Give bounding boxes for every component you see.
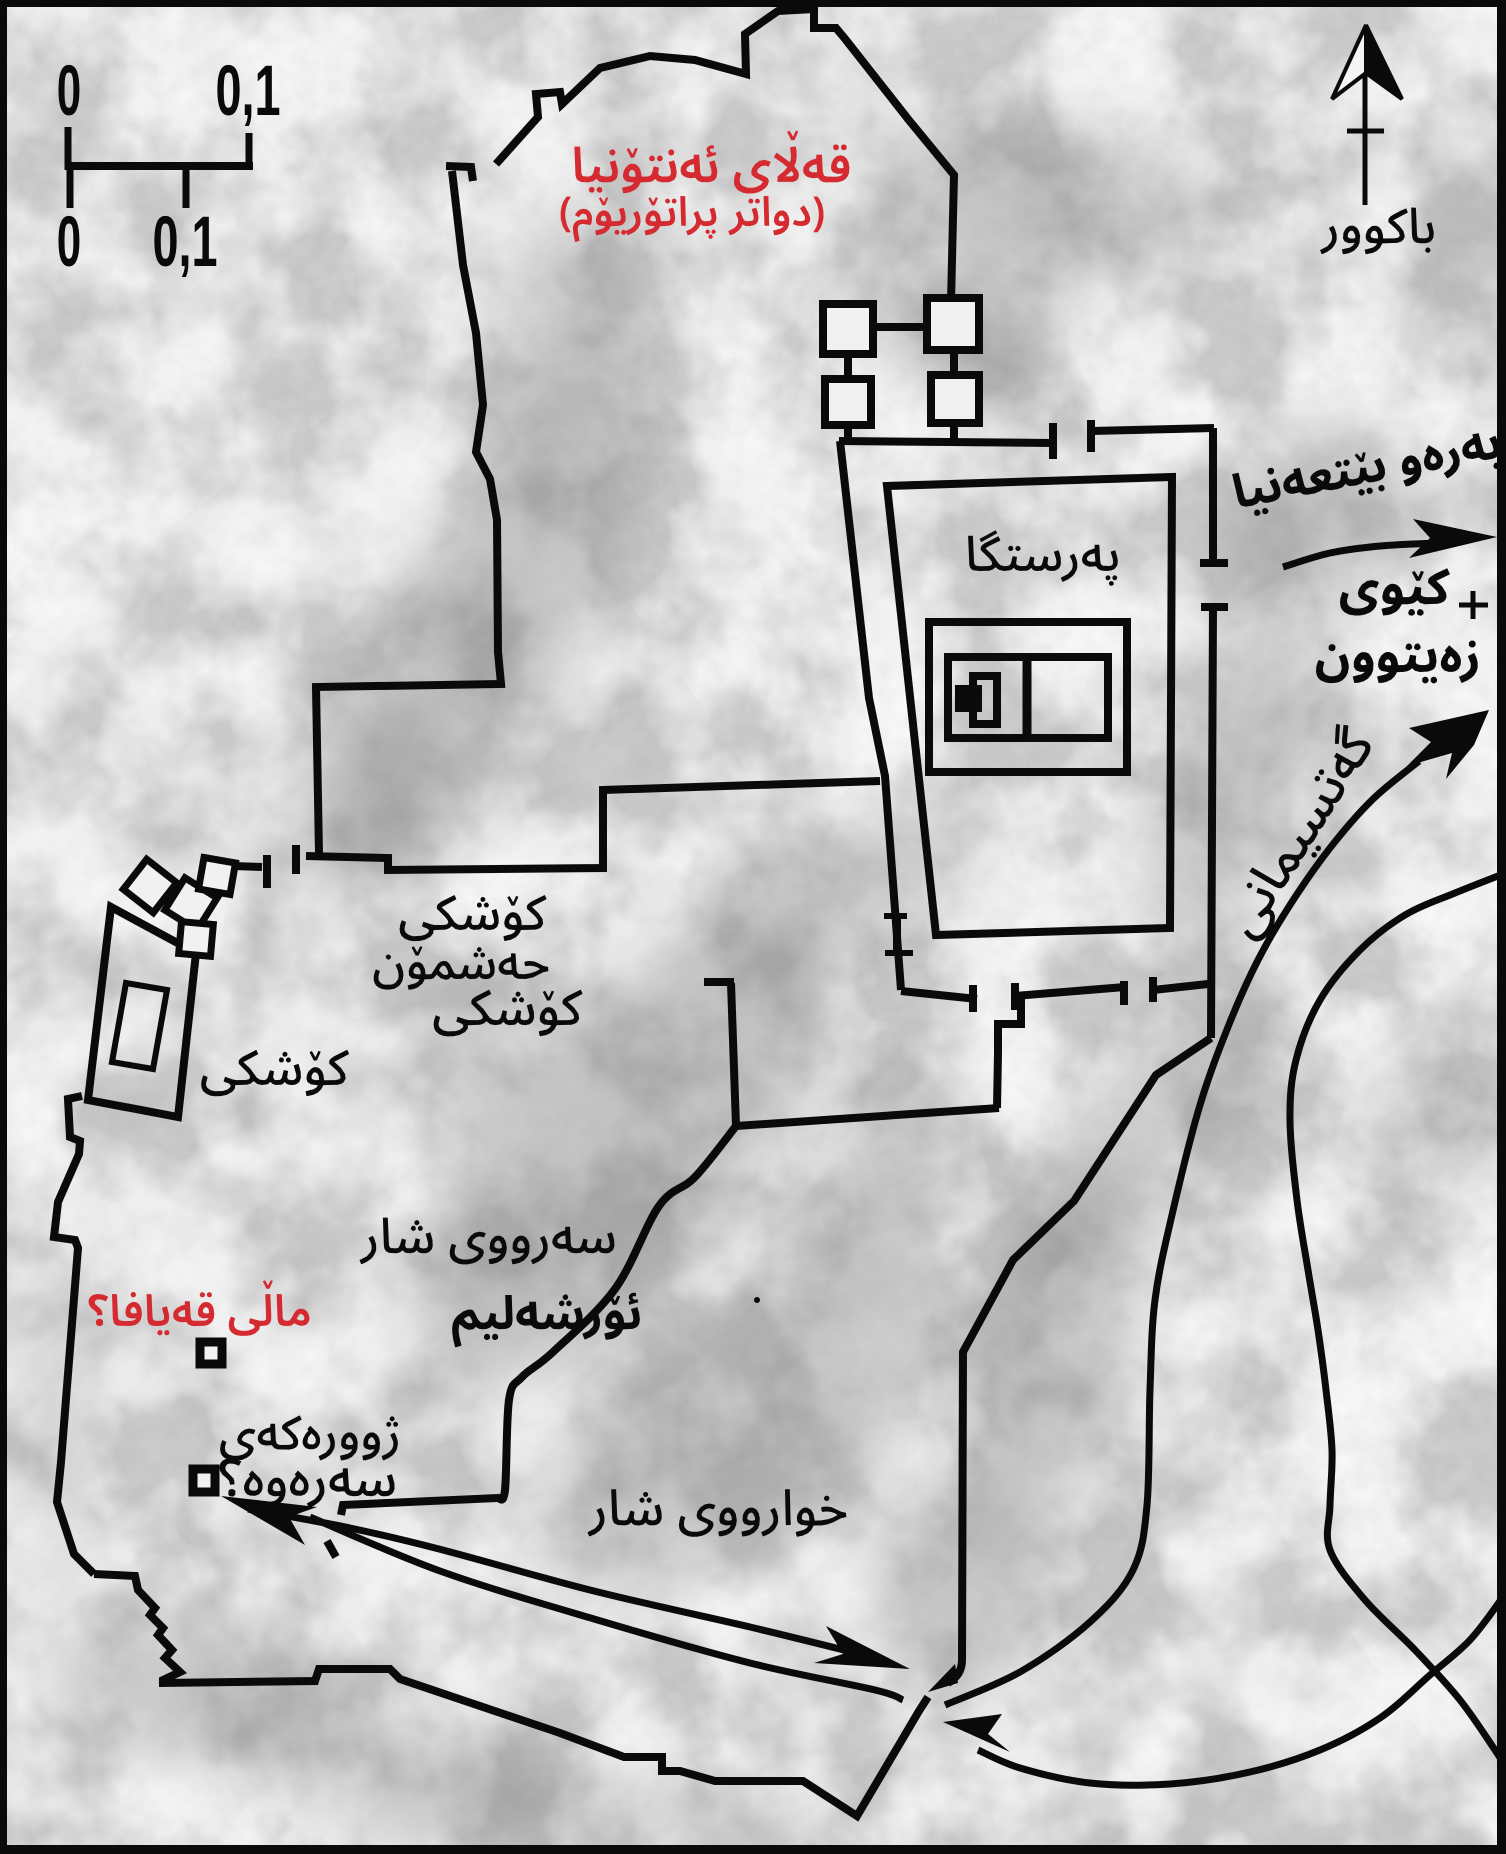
svg-text:0: 0 [57,51,81,130]
svg-text:0: 0 [57,202,81,281]
svg-text:0,1: 0,1 [152,202,217,281]
svg-text:0,1: 0,1 [215,51,280,130]
